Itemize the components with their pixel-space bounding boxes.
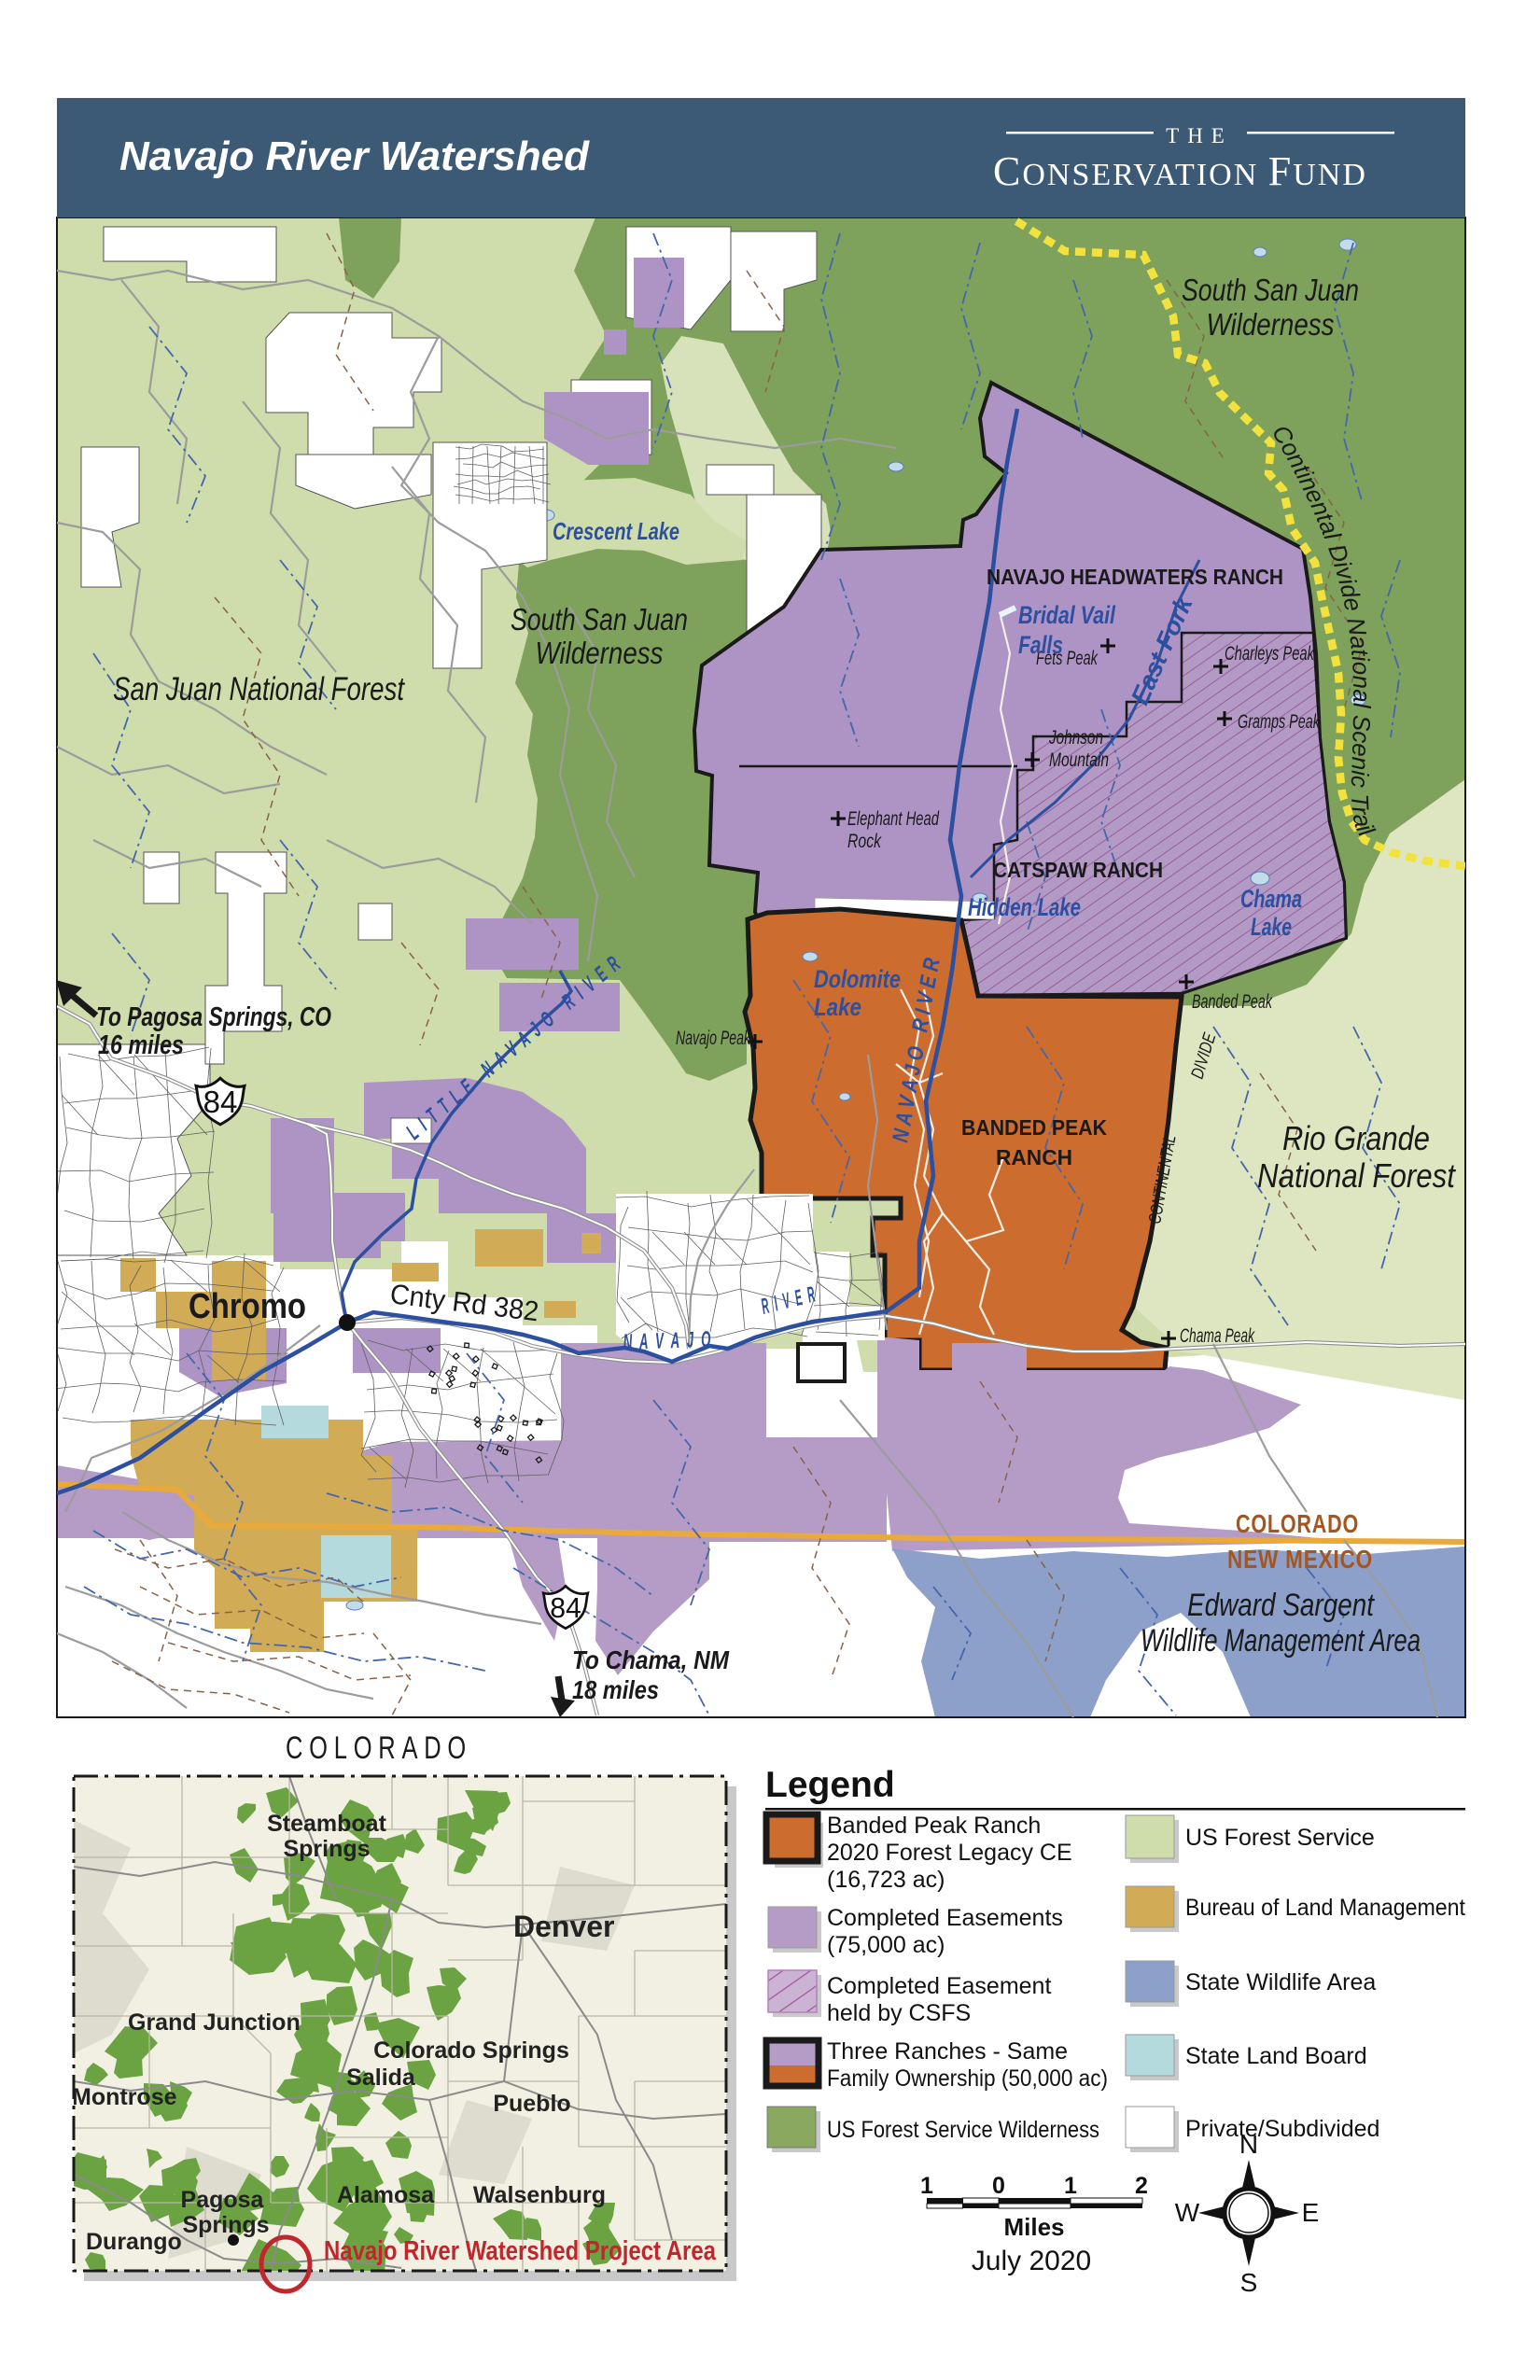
svg-text:Completed Easement: Completed Easement [827, 1973, 1051, 1999]
svg-text:Johnson: Johnson [1048, 727, 1103, 749]
svg-text:Chama Peak: Chama Peak [1180, 1325, 1255, 1347]
svg-text:Colorado Springs: Colorado Springs [373, 2037, 569, 2064]
svg-text:Wildlife Management Area: Wildlife Management Area [1141, 1623, 1421, 1659]
svg-text:W: W [1175, 2198, 1200, 2227]
svg-text:Pagosa: Pagosa [181, 2187, 265, 2213]
svg-text:Chromo: Chromo [189, 1287, 306, 1326]
svg-text:(16,723 ac): (16,723 ac) [827, 1867, 945, 1893]
svg-text:Navajo River Watershed: Navajo River Watershed [119, 133, 590, 179]
svg-text:Alamosa: Alamosa [337, 2182, 435, 2208]
svg-text:Hidden Lake: Hidden Lake [968, 893, 1081, 921]
svg-text:Rio Grande: Rio Grande [1282, 1119, 1430, 1157]
svg-text:2: 2 [1135, 2173, 1148, 2199]
svg-text:COLORADO: COLORADO [286, 1730, 472, 1766]
svg-text:Banded Peak: Banded Peak [1192, 991, 1273, 1013]
svg-text:Wilderness: Wilderness [536, 636, 664, 670]
svg-text:18 miles: 18 miles [572, 1675, 659, 1704]
svg-text:BANDED PEAK: BANDED PEAK [961, 1115, 1107, 1140]
svg-text:Dolomite: Dolomite [814, 965, 901, 993]
svg-text:Montrose: Montrose [72, 2084, 177, 2110]
svg-text:San Juan National Forest: San Juan National Forest [113, 671, 405, 707]
svg-text:Steamboat: Steamboat [267, 1811, 386, 1837]
svg-text:E: E [1302, 2198, 1320, 2227]
svg-text:Charleys Peak: Charleys Peak [1225, 643, 1315, 665]
svg-text:CATSPAW RANCH: CATSPAW RANCH [993, 858, 1163, 882]
svg-text:Navajo River Watershed Projec: Navajo River Watershed Project Area [324, 2236, 717, 2266]
svg-text:0: 0 [992, 2173, 1005, 2199]
svg-text:84: 84 [550, 1593, 581, 1624]
svg-text:July 2020: July 2020 [972, 2246, 1091, 2276]
svg-text:Salida: Salida [346, 2065, 416, 2091]
svg-text:Miles: Miles [1003, 2213, 1064, 2241]
svg-text:US Forest Service Wilderness: US Forest Service Wilderness [827, 2117, 1099, 2143]
svg-text:Family Ownership (50,000 ac): Family Ownership (50,000 ac) [827, 2065, 1108, 2092]
svg-text:Crescent Lake: Crescent Lake [553, 517, 679, 545]
svg-text:Falls: Falls [1018, 631, 1063, 659]
svg-text:NAVAJO HEADWATERS RANCH: NAVAJO HEADWATERS RANCH [987, 565, 1283, 589]
svg-text:Lake: Lake [814, 993, 861, 1021]
svg-text:16 miles: 16 miles [98, 1030, 184, 1060]
svg-text:1: 1 [920, 2173, 933, 2199]
svg-text:S: S [1240, 2268, 1258, 2297]
svg-text:84: 84 [203, 1085, 238, 1120]
svg-text:Private/Subdivided: Private/Subdivided [1185, 2116, 1379, 2142]
svg-text:Legend: Legend [765, 1765, 895, 1805]
svg-text:Springs: Springs [182, 2212, 269, 2238]
svg-text:Banded Peak Ranch: Banded Peak Ranch [827, 1813, 1041, 1839]
svg-text:held by CSFS: held by CSFS [827, 2000, 971, 2026]
svg-text:South San Juan: South San Juan [1182, 273, 1359, 307]
svg-text:RANCH: RANCH [996, 1145, 1072, 1169]
svg-text:State Land Board: State Land Board [1185, 2043, 1367, 2069]
svg-text:Pueblo: Pueblo [493, 2091, 570, 2117]
svg-text:Lake: Lake [1251, 913, 1292, 941]
svg-text:Elephant Head: Elephant Head [847, 808, 940, 830]
svg-text:Bridal Vail: Bridal Vail [1018, 601, 1115, 629]
svg-text:(75,000 ac): (75,000 ac) [827, 1932, 945, 1958]
svg-text:Navajo Peak: Navajo Peak [676, 1028, 751, 1049]
svg-text:State Wildlife Area: State Wildlife Area [1185, 1969, 1376, 1995]
svg-text:US Forest Service: US Forest Service [1185, 1825, 1375, 1851]
svg-text:Chama: Chama [1240, 885, 1302, 913]
svg-text:Grand Junction: Grand Junction [128, 2009, 301, 2036]
svg-text:Gramps Peak: Gramps Peak [1238, 711, 1321, 733]
svg-text:Walsenburg: Walsenburg [473, 2182, 606, 2208]
svg-text:NEW MEXICO: NEW MEXICO [1227, 1545, 1373, 1574]
svg-text:Wilderness: Wilderness [1207, 307, 1335, 342]
svg-text:N: N [1239, 2130, 1258, 2159]
svg-text:South San Juan: South San Juan [511, 602, 688, 637]
svg-text:THE: THE [1166, 124, 1233, 147]
svg-text:Three Ranches - Same: Three Ranches - Same [827, 2038, 1068, 2065]
svg-text:National Forest: National Forest [1257, 1156, 1457, 1195]
svg-text:COLORADO: COLORADO [1236, 1509, 1359, 1538]
svg-text:To Pagosa Springs, CO: To Pagosa Springs, CO [96, 1002, 331, 1032]
svg-text:N A V A J O: N A V A J O [623, 1327, 713, 1355]
svg-text:Mountain: Mountain [1049, 749, 1109, 771]
svg-text:1: 1 [1064, 2173, 1077, 2199]
svg-text:Rock: Rock [847, 831, 882, 852]
svg-text:Edward Sargent: Edward Sargent [1187, 1588, 1375, 1623]
svg-text:Durango: Durango [86, 2229, 182, 2255]
svg-text:Completed Easements: Completed Easements [827, 1905, 1063, 1931]
svg-text:Denver: Denver [513, 1910, 615, 1943]
svg-text:2020 Forest Legacy CE: 2020 Forest Legacy CE [827, 1840, 1072, 1866]
svg-text:Bureau of Land Management: Bureau of Land Management [1185, 1895, 1465, 1921]
svg-text:To Chama, NM: To Chama, NM [572, 1645, 730, 1674]
svg-text:Springs: Springs [283, 1836, 370, 1862]
